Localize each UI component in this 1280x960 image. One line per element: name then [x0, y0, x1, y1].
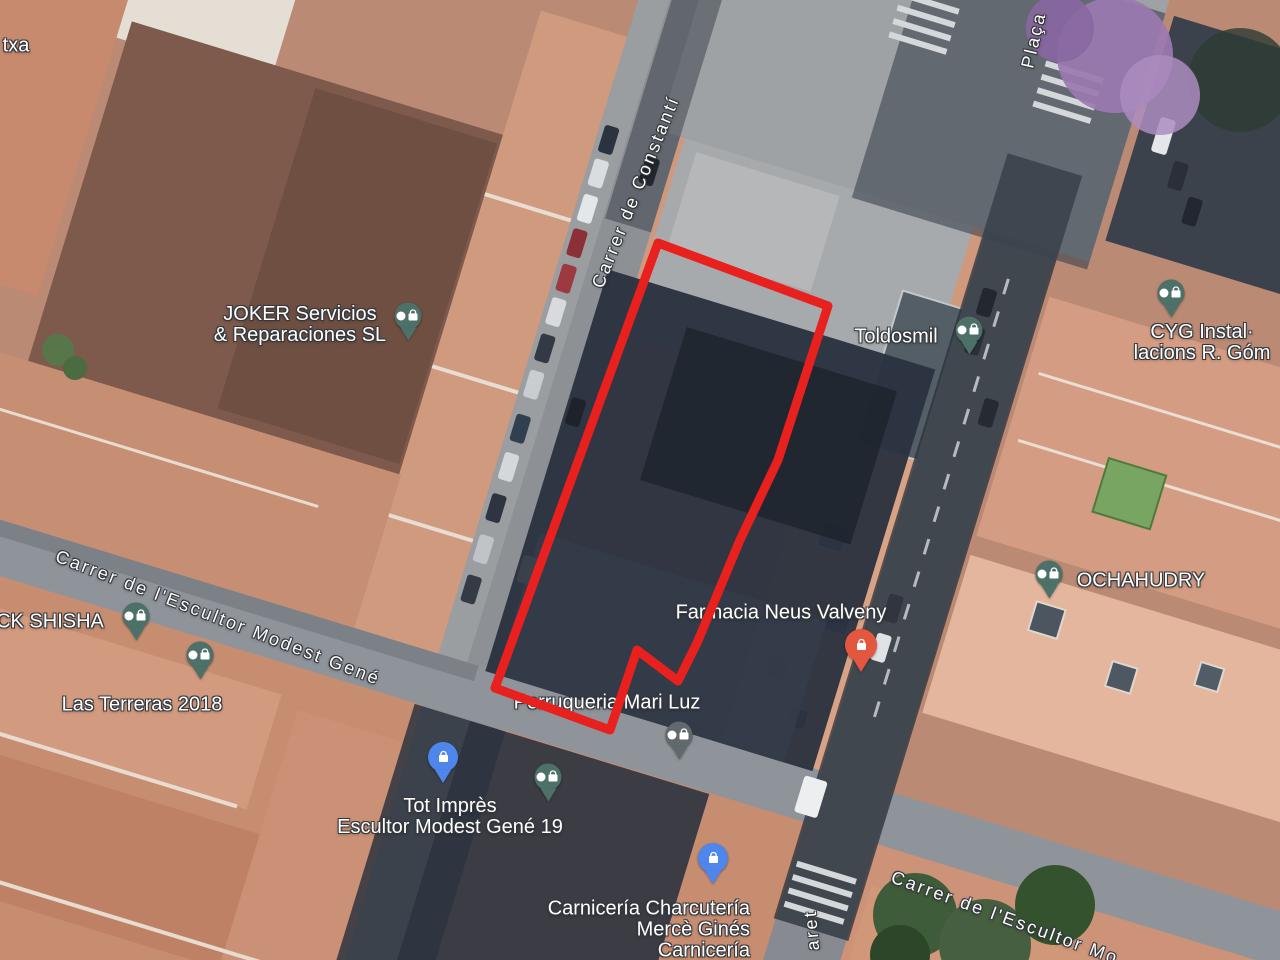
dot-glyph: [396, 312, 405, 321]
pin-head: [666, 722, 693, 749]
pin-tail: [961, 342, 977, 355]
dot-glyph: [1037, 570, 1046, 579]
pin-head: [845, 629, 877, 661]
pin-tail: [540, 789, 556, 802]
map-canvas[interactable]: Carrer de ConstantíCarrer de l'Escultor …: [0, 0, 1280, 960]
map-pin-ochahudry[interactable]: [1036, 561, 1063, 599]
pin-head: [698, 843, 728, 873]
map-pin-carniceria-merce-gines[interactable]: [698, 843, 728, 884]
pin-head: [956, 317, 983, 344]
pin-tail: [671, 747, 687, 760]
dot-glyph: [667, 731, 676, 740]
shopping-bag-icon: [405, 309, 420, 324]
map-pin-toldosmil[interactable]: [956, 317, 983, 355]
map-pin-unlabeled-place[interactable]: [535, 764, 562, 802]
dot-glyph: [957, 326, 966, 335]
dot-glyph: [188, 651, 197, 660]
pin-head: [395, 303, 422, 330]
shopping-bag-icon: [1046, 567, 1061, 582]
dot-glyph: [536, 773, 545, 782]
pin-tail: [400, 328, 416, 341]
pins-layer: [0, 0, 1280, 960]
map-pin-cyg-installacions[interactable]: [1158, 280, 1185, 318]
pin-tail: [1163, 305, 1179, 318]
map-pin-farmacia-neus-valveny[interactable]: [845, 629, 877, 672]
pin-tail: [853, 659, 869, 672]
pin-head: [1158, 280, 1185, 307]
pin-tail: [435, 770, 451, 783]
pin-tail: [192, 667, 208, 680]
shopping-bag-icon: [854, 638, 869, 653]
shopping-bag-icon: [966, 323, 981, 338]
map-pin-perruqueria-mari-luz[interactable]: [666, 722, 693, 760]
shopping-bag-icon: [545, 770, 560, 785]
dot-glyph: [1159, 289, 1168, 298]
map-pin-las-terreras[interactable]: [187, 642, 214, 680]
pin-head: [123, 603, 150, 630]
map-pin-ck-shisha[interactable]: [123, 603, 150, 641]
pin-tail: [705, 871, 721, 884]
pin-head: [187, 642, 214, 669]
map-pin-tot-impres[interactable]: [428, 742, 458, 783]
shopping-bag-icon: [1168, 286, 1183, 301]
pin-head: [428, 742, 458, 772]
shopping-bag-icon: [436, 750, 451, 765]
map-pin-joker-servicios[interactable]: [395, 303, 422, 341]
pin-tail: [1041, 586, 1057, 599]
dot-glyph: [124, 612, 133, 621]
pin-head: [535, 764, 562, 791]
shopping-bag-icon: [133, 609, 148, 624]
pin-tail: [128, 628, 144, 641]
shopping-bag-icon: [197, 648, 212, 663]
shopping-bag-icon: [706, 851, 721, 866]
shopping-bag-icon: [676, 728, 691, 743]
pin-head: [1036, 561, 1063, 588]
